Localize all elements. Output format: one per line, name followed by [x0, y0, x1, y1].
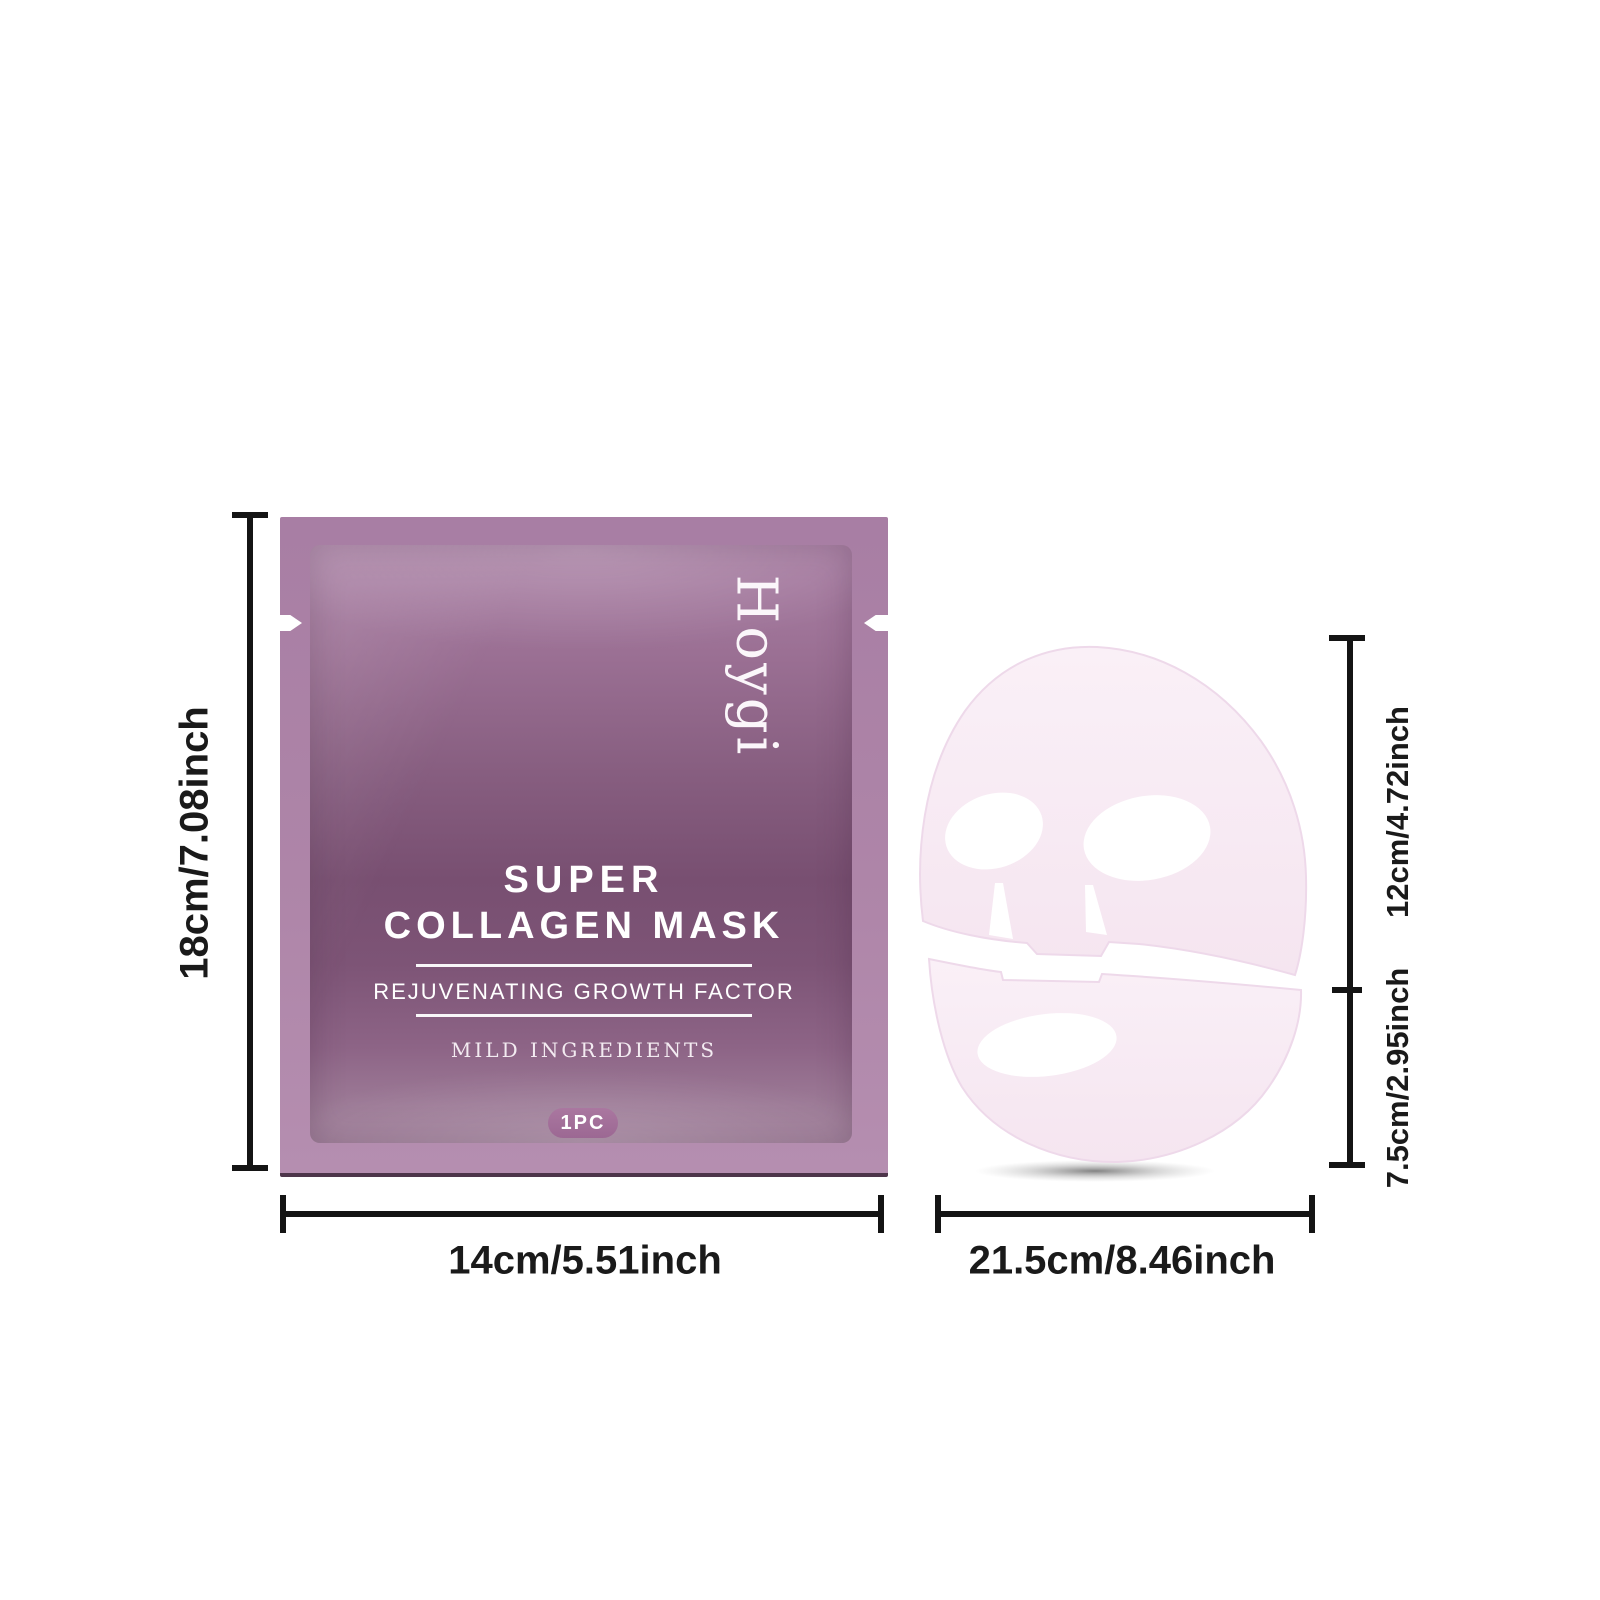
product-title-line2: COLLAGEN MASK	[280, 905, 888, 948]
dimension-line-horizontal-right	[938, 1211, 1312, 1217]
dimension-cap-left	[935, 1195, 941, 1233]
pouch-height-label: 18cm/7.08inch	[173, 706, 218, 980]
product-tagline: MILD INGREDIENTS	[280, 1038, 888, 1062]
dimension-cap-right	[878, 1195, 884, 1233]
dimension-tick-middle	[1332, 987, 1362, 993]
dimension-cap-left	[280, 1195, 286, 1233]
dimension-cap-bottom	[232, 1165, 268, 1171]
dimension-cap-top	[232, 512, 268, 518]
pouch-width-label: 14cm/5.51inch	[448, 1239, 722, 1284]
tear-notch-left-icon	[276, 615, 302, 631]
quantity-badge: 1PC	[548, 1108, 618, 1138]
brand-logo: Hoygi	[724, 575, 789, 758]
divider-line-top	[416, 964, 752, 967]
dimension-cap-top	[1329, 635, 1365, 641]
dimension-cap-bottom	[1329, 1162, 1365, 1168]
dimension-line-vertical-right	[1347, 638, 1353, 1168]
mask-chin-height-label: 7.5cm/2.95inch	[1380, 968, 1416, 1189]
mask-shadow	[975, 1160, 1215, 1182]
mask-pouch: Hoygi SUPER COLLAGEN MASK REJUVENATING G…	[280, 517, 888, 1177]
dimension-cap-right	[1309, 1195, 1315, 1233]
dimension-line-horizontal-left	[283, 1211, 881, 1217]
dimension-line-vertical-left	[247, 515, 253, 1171]
face-mask-illustration	[885, 625, 1325, 1195]
product-subtitle: REJUVENATING GROWTH FACTOR	[280, 979, 888, 1005]
mask-face-height-label: 12cm/4.72inch	[1380, 706, 1416, 918]
divider-line-bottom	[416, 1014, 752, 1017]
product-title-line1: SUPER	[280, 859, 888, 902]
product-dimension-diagram: Hoygi SUPER COLLAGEN MASK REJUVENATING G…	[0, 0, 1600, 1600]
mask-width-label: 21.5cm/8.46inch	[969, 1239, 1276, 1284]
